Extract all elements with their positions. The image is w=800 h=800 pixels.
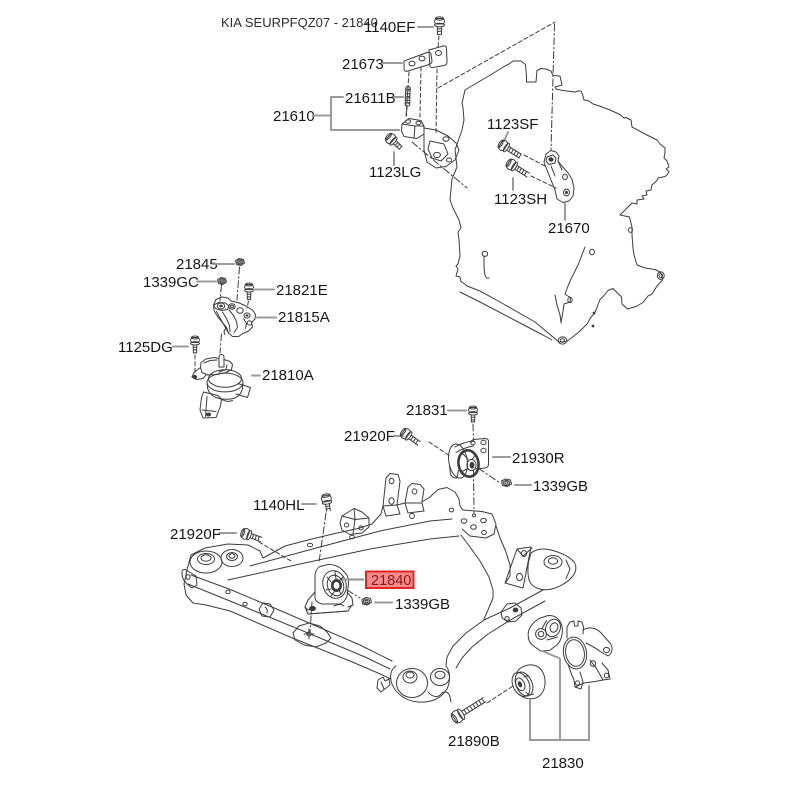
svg-text:21673: 21673	[342, 56, 384, 73]
svg-text:21815A: 21815A	[278, 309, 330, 326]
svg-text:21920F: 21920F	[170, 526, 221, 543]
svg-text:1140EF: 1140EF	[364, 19, 415, 36]
svg-text:21670: 21670	[548, 220, 590, 237]
svg-text:21845: 21845	[176, 256, 218, 273]
svg-text:1123LG: 1123LG	[369, 164, 421, 181]
svg-text:KIA SEURPFQZ07 - 21840: KIA SEURPFQZ07 - 21840	[221, 15, 378, 30]
svg-text:21821E: 21821E	[276, 282, 328, 299]
svg-text:1339GB: 1339GB	[395, 596, 450, 613]
svg-text:1123SF: 1123SF	[487, 116, 538, 133]
svg-text:1125DG: 1125DG	[118, 339, 173, 356]
svg-text:21930R: 21930R	[512, 450, 565, 467]
svg-text:21840: 21840	[371, 573, 411, 589]
svg-text:21831: 21831	[406, 402, 448, 419]
svg-text:21611B: 21611B	[345, 90, 396, 107]
svg-text:21830: 21830	[542, 755, 584, 772]
svg-text:1140HL: 1140HL	[253, 497, 304, 514]
svg-text:1123SH: 1123SH	[494, 191, 547, 208]
svg-text:21920F: 21920F	[344, 428, 395, 445]
svg-text:21890B: 21890B	[448, 733, 500, 750]
svg-text:1339GC: 1339GC	[143, 274, 199, 291]
svg-text:1339GB: 1339GB	[533, 478, 588, 495]
svg-text:21610: 21610	[273, 108, 315, 125]
svg-text:21810A: 21810A	[262, 367, 314, 384]
